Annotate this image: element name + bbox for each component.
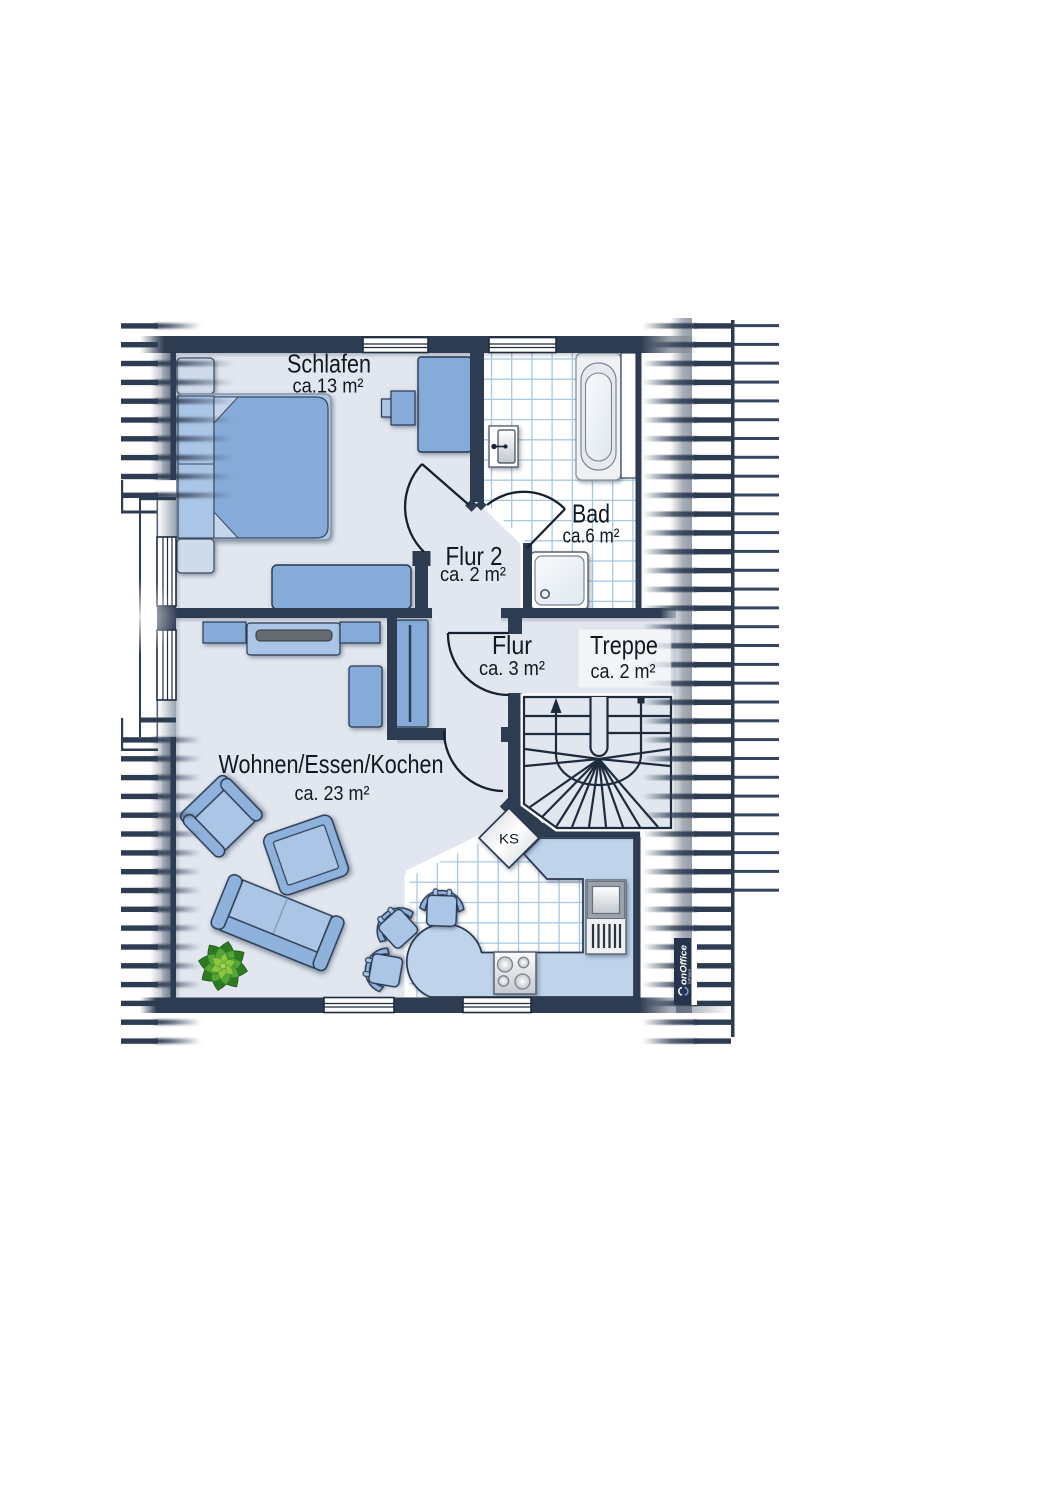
svg-text:Schlafen: Schlafen [287, 349, 371, 379]
svg-text:ca.6 m²: ca.6 m² [563, 526, 620, 548]
svg-text:KS: KS [499, 831, 519, 847]
svg-text:ca. 23 m²: ca. 23 m² [295, 783, 370, 805]
svg-text:Wohnen/Essen/Kochen: Wohnen/Essen/Kochen [219, 749, 444, 779]
svg-text:ca.13 m²: ca.13 m² [293, 376, 364, 398]
svg-text:Treppe: Treppe [590, 630, 658, 660]
svg-text:Flur: Flur [492, 630, 532, 660]
svg-text:Bad: Bad [572, 499, 610, 529]
svg-text:software: software [687, 969, 691, 984]
svg-text:ca. 2 m²: ca. 2 m² [440, 564, 506, 586]
svg-text:ca. 2 m²: ca. 2 m² [591, 661, 656, 683]
svg-text:ca. 3 m²: ca. 3 m² [479, 658, 545, 680]
